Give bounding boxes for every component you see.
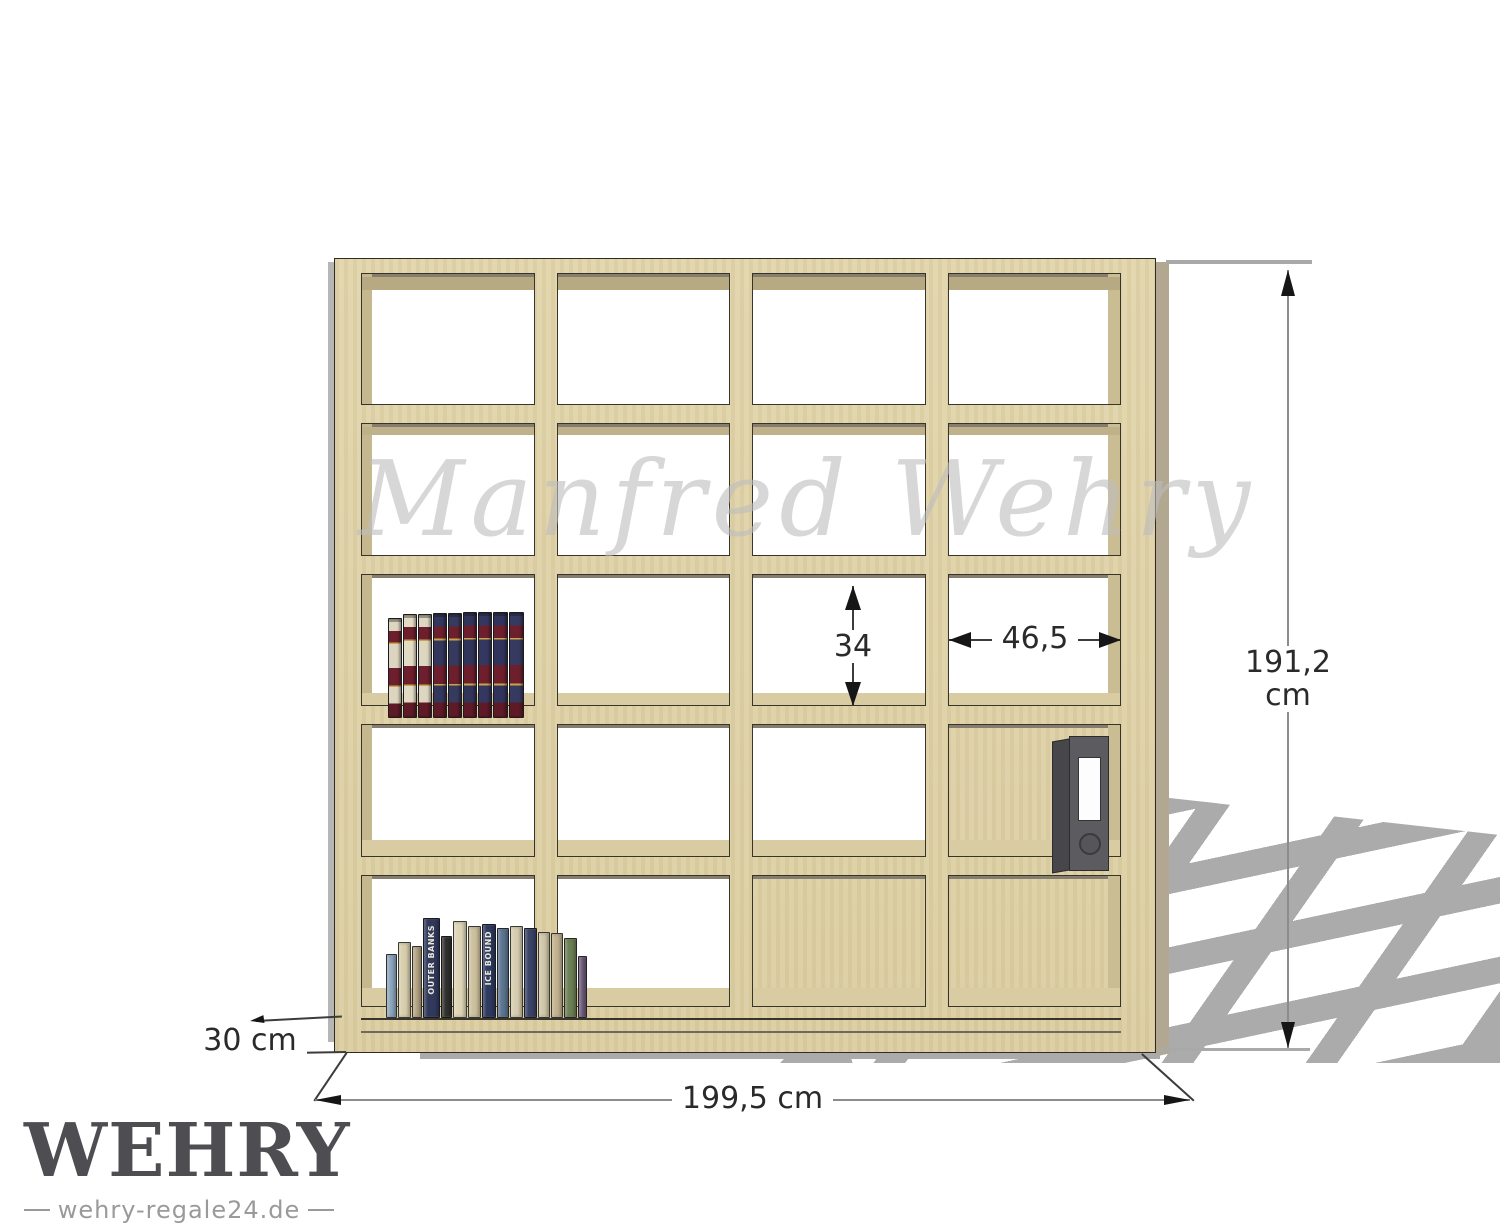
book-spine xyxy=(478,612,492,718)
shelf-cell xyxy=(948,875,1122,1007)
brand-logo: WEHRY wehry-regale24.de xyxy=(24,1114,334,1224)
arrow-down-icon xyxy=(1281,1022,1295,1048)
plinth-edge-line xyxy=(361,1018,1121,1020)
depth-dimension-label: 30 cm xyxy=(190,1024,310,1057)
book-spine-title: ICE BOUND xyxy=(485,931,493,985)
brand-name: WEHRY xyxy=(24,1114,334,1188)
height-extension-line-top xyxy=(1166,260,1312,264)
book-spine xyxy=(388,618,402,718)
shelf-base-shadow xyxy=(420,1052,1160,1059)
book-spine xyxy=(412,946,422,1018)
book-spine xyxy=(578,956,587,1018)
shelf-cell xyxy=(948,423,1122,555)
height-dimension-label: 191,2 cm xyxy=(1208,646,1368,712)
book-spine xyxy=(538,932,550,1018)
shelf-cell xyxy=(752,423,926,555)
ring-binder xyxy=(1052,736,1110,870)
book-spine xyxy=(524,928,537,1018)
book-spine xyxy=(551,933,563,1018)
shelf-cell xyxy=(948,273,1122,405)
shelf-cell xyxy=(557,724,731,856)
binder-spine-label xyxy=(1078,757,1101,821)
book-spine xyxy=(386,954,397,1018)
tagline-rule-right xyxy=(308,1209,334,1211)
shelf-cell xyxy=(557,273,731,405)
shelf-cell xyxy=(752,724,926,856)
book-spine: OUTER BANKS xyxy=(423,918,440,1018)
book-spine xyxy=(509,612,524,718)
shelf-cell xyxy=(752,273,926,405)
book-spine: ICE BOUND xyxy=(482,924,496,1018)
plinth-base-line xyxy=(361,1031,1121,1033)
product-diagram: OUTER BANKSICE BOUND Manfred Wehry 199,5… xyxy=(0,0,1500,1225)
width-dimension-label: 199,5 cm xyxy=(315,1082,1190,1115)
shelf-cell xyxy=(557,423,731,555)
shelf-cell xyxy=(361,423,535,555)
encyclopedia-books xyxy=(388,612,524,718)
arrow-down-icon xyxy=(845,682,861,706)
cell-width-dimension-label: 46,5 xyxy=(949,622,1121,655)
shelf-cell xyxy=(361,273,535,405)
tagline-rule-left xyxy=(24,1209,50,1211)
shelf-cell xyxy=(752,875,926,1007)
shelf-cell xyxy=(361,724,535,856)
book-spine xyxy=(398,942,411,1018)
arrow-up-icon xyxy=(1281,270,1295,296)
binder-spine xyxy=(1069,736,1109,871)
book-spine xyxy=(448,613,462,718)
shelf-right-side-panel xyxy=(1156,262,1169,1054)
book-spine xyxy=(510,926,523,1018)
cell-height-dimension-label: 34 xyxy=(813,630,893,663)
book-spine xyxy=(418,614,432,718)
book-spine xyxy=(493,612,508,718)
book-spine-title: OUTER BANKS xyxy=(428,925,436,995)
book-spine xyxy=(441,936,452,1018)
book-spine xyxy=(463,612,477,718)
brand-tagline: wehry-regale24.de xyxy=(58,1196,301,1224)
book-spine xyxy=(453,921,467,1018)
book-spine xyxy=(564,938,577,1018)
paperback-books: OUTER BANKSICE BOUND xyxy=(386,916,587,1018)
book-spine xyxy=(403,614,417,718)
shelf-cell xyxy=(557,574,731,706)
arrow-up-icon xyxy=(845,586,861,610)
height-extension-line-bottom xyxy=(1158,1048,1310,1051)
book-spine xyxy=(433,613,447,718)
book-spine xyxy=(497,928,509,1018)
binder-finger-hole-icon xyxy=(1079,833,1101,855)
book-spine xyxy=(468,926,481,1018)
